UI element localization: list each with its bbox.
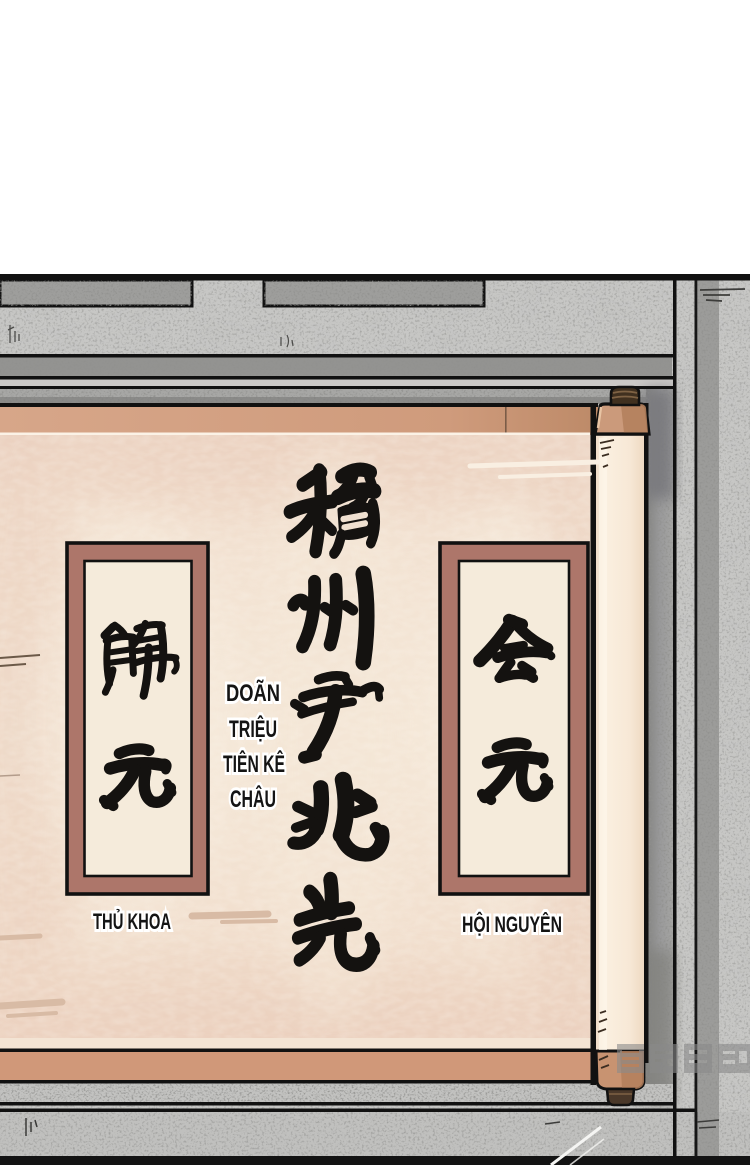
svg-text:CHÂU: CHÂU	[230, 785, 276, 813]
svg-text:DOÃN: DOÃN	[226, 679, 280, 707]
svg-text:THỦ KHOA: THỦ KHOA	[93, 909, 171, 934]
svg-text:TRIỆU: TRIỆU	[229, 715, 277, 743]
svg-text:HỘI NGUYÊN: HỘI NGUYÊN	[462, 912, 562, 937]
svg-text:TIÊN KÊ: TIÊN KÊ	[223, 750, 285, 778]
